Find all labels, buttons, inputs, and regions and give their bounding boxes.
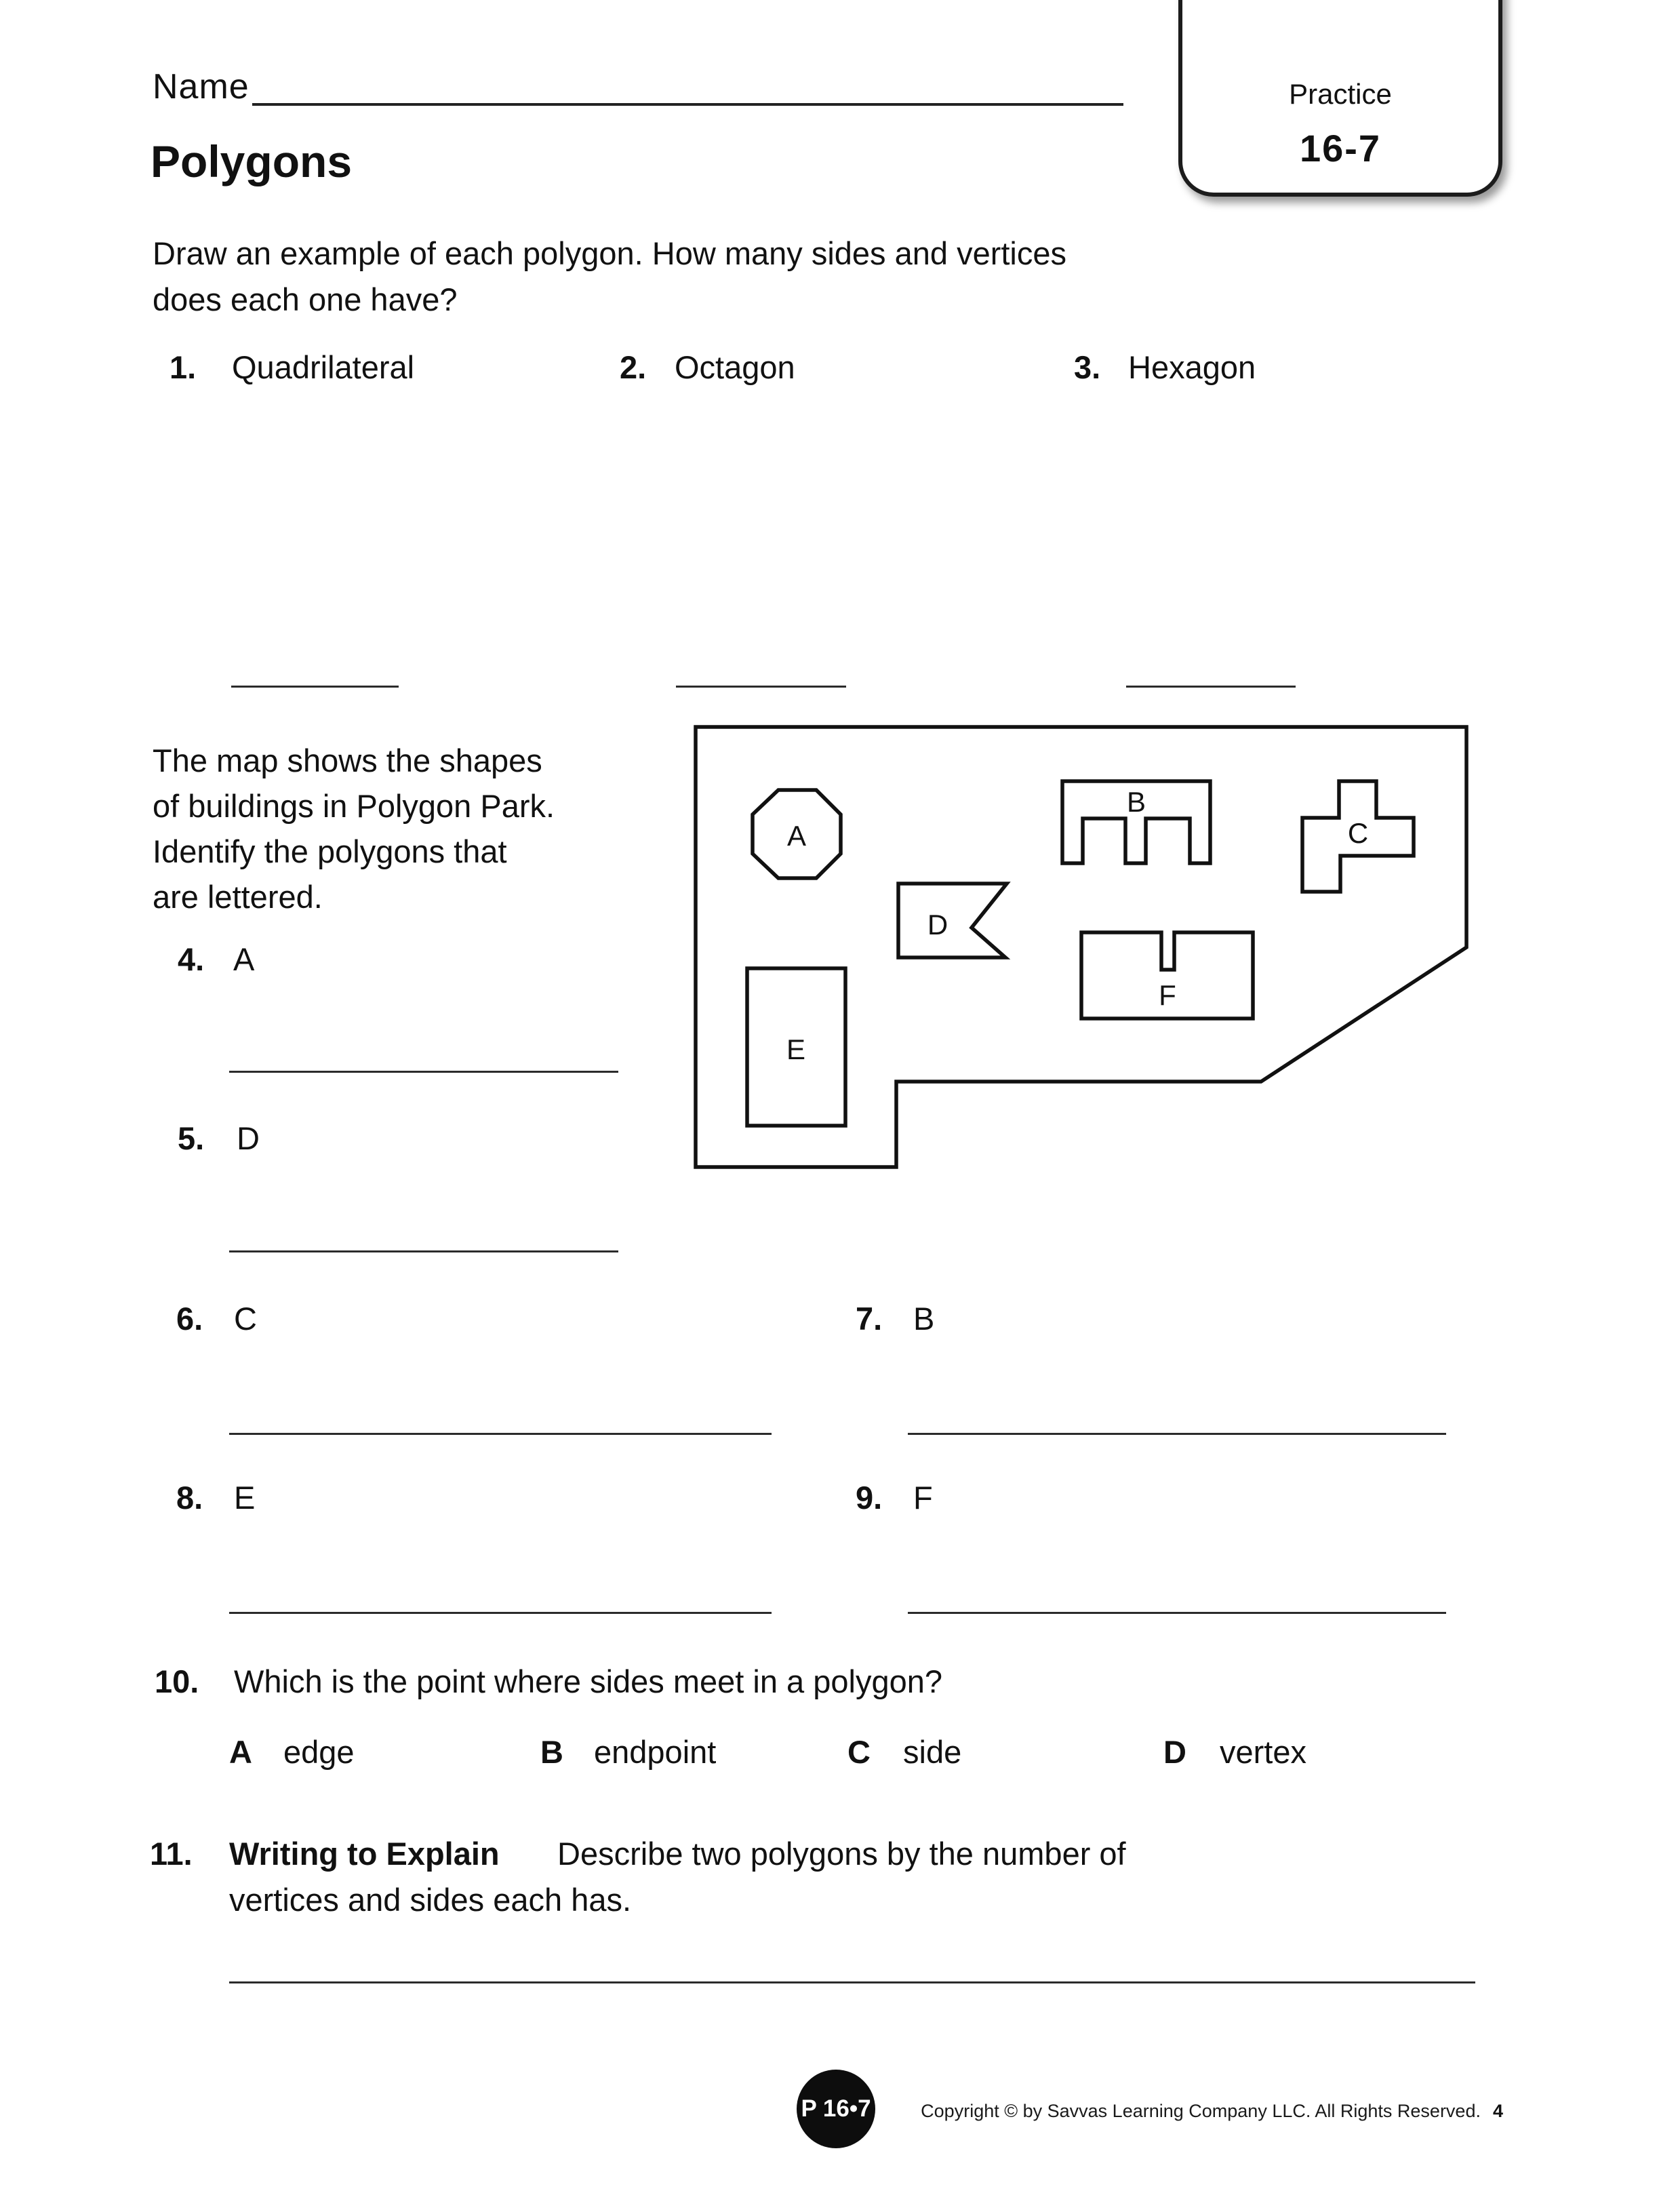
- item-5-number: 5.: [178, 1120, 204, 1158]
- item-7-label: B: [913, 1300, 934, 1338]
- practice-badge: Practice 16-7: [1178, 0, 1502, 197]
- practice-badge-label: Practice: [1289, 77, 1392, 111]
- copyright-text: Copyright © by Savvas Learning Company L…: [921, 2101, 1481, 2122]
- polygon-park-map: A B C D E F: [671, 705, 1492, 1180]
- answer-line-5[interactable]: [229, 1250, 618, 1252]
- page-number: 4: [1493, 2101, 1503, 2122]
- item-6-number: 6.: [176, 1300, 203, 1338]
- lesson-seal: P 16•7: [797, 2070, 875, 2148]
- map-desc-line-4: are lettered.: [153, 874, 555, 920]
- building-a-label: A: [787, 820, 806, 852]
- name-line[interactable]: [252, 103, 1123, 106]
- footer-copyright-row: Copyright © by Savvas Learning Company L…: [921, 2101, 1503, 2122]
- map-desc-line-1: The map shows the shapes: [153, 738, 555, 783]
- item-2-label: Octagon: [675, 349, 795, 387]
- question-11-text-line1: Describe two polygons by the number of: [557, 1835, 1126, 1873]
- building-b-label: B: [1127, 786, 1146, 818]
- answer-line-11[interactable]: [229, 1981, 1475, 1983]
- option-d-text[interactable]: vertex: [1220, 1733, 1306, 1771]
- building-c-label: C: [1348, 817, 1368, 849]
- item-8-number: 8.: [176, 1479, 203, 1517]
- intro-line-1: Draw an example of each polygon. How man…: [153, 231, 1066, 277]
- intro-instructions: Draw an example of each polygon. How man…: [153, 231, 1066, 323]
- item-1-label: Quadrilateral: [232, 349, 414, 387]
- answer-line-8[interactable]: [229, 1612, 772, 1614]
- name-label: Name: [153, 66, 249, 107]
- item-11-number: 11.: [150, 1835, 193, 1873]
- option-c-letter[interactable]: C: [847, 1733, 871, 1771]
- option-b-letter[interactable]: B: [540, 1733, 563, 1771]
- question-10-text: Which is the point where sides meet in a…: [234, 1663, 942, 1701]
- map-description: The map shows the shapes of buildings in…: [153, 738, 555, 920]
- answer-line-1[interactable]: [231, 686, 399, 688]
- answer-line-7[interactable]: [908, 1433, 1446, 1435]
- answer-line-2[interactable]: [676, 686, 846, 688]
- answer-line-4[interactable]: [229, 1071, 618, 1073]
- item-5-label: D: [237, 1120, 260, 1158]
- item-7-number: 7.: [856, 1300, 882, 1338]
- lesson-seal-text: P 16•7: [801, 2095, 871, 2122]
- option-c-text[interactable]: side: [903, 1733, 961, 1771]
- item-1-number: 1.: [169, 349, 196, 387]
- item-9-label: F: [913, 1479, 933, 1517]
- answer-line-9[interactable]: [908, 1612, 1446, 1614]
- option-d-letter[interactable]: D: [1163, 1733, 1186, 1771]
- lesson-number: 16-7: [1300, 129, 1381, 168]
- item-3-number: 3.: [1074, 349, 1100, 387]
- item-10-number: 10.: [155, 1663, 199, 1701]
- item-4-label: A: [233, 941, 254, 979]
- item-2-number: 2.: [620, 349, 646, 387]
- item-8-label: E: [234, 1479, 255, 1517]
- intro-line-2: does each one have?: [153, 277, 1066, 323]
- item-6-label: C: [234, 1300, 257, 1338]
- item-3-label: Hexagon: [1128, 349, 1256, 387]
- worksheet-page: Name Practice 16-7 Polygons Draw an exam…: [0, 0, 1678, 2212]
- map-desc-line-2: of buildings in Polygon Park.: [153, 783, 555, 829]
- question-11-text-line2: vertices and sides each has.: [229, 1881, 631, 1919]
- building-d-label: D: [927, 909, 948, 941]
- answer-line-3[interactable]: [1126, 686, 1296, 688]
- building-e-label: E: [786, 1033, 805, 1065]
- option-b-text[interactable]: endpoint: [594, 1733, 716, 1771]
- page-title: Polygons: [151, 136, 352, 187]
- option-a-letter[interactable]: A: [229, 1733, 252, 1771]
- answer-line-6[interactable]: [229, 1433, 772, 1435]
- item-4-number: 4.: [178, 941, 204, 979]
- building-f-label: F: [1159, 979, 1176, 1011]
- option-a-text[interactable]: edge: [283, 1733, 355, 1771]
- item-9-number: 9.: [856, 1479, 882, 1517]
- question-11-lead: Writing to Explain: [229, 1835, 500, 1873]
- map-desc-line-3: Identify the polygons that: [153, 829, 555, 874]
